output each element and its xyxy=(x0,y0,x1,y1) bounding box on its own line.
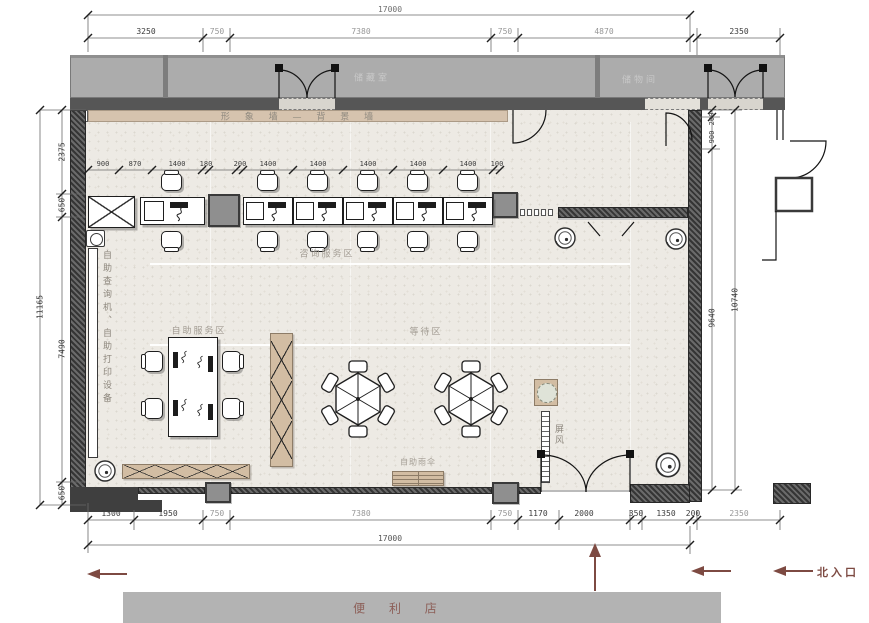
right-wall xyxy=(688,110,702,502)
dim-label: 2350 xyxy=(729,509,748,518)
rack-divider xyxy=(418,472,419,485)
dim-label: 200 xyxy=(234,160,247,168)
station-bar xyxy=(173,352,178,368)
dim-label: 1350 xyxy=(656,509,675,518)
column xyxy=(205,482,231,503)
dim-label: 1400 xyxy=(310,160,327,168)
chair xyxy=(222,351,241,372)
desk-xbox xyxy=(246,202,264,220)
consult-desk xyxy=(443,197,493,225)
self-service-table xyxy=(168,337,218,437)
dim-label: 200 xyxy=(708,113,716,126)
storage-right-door-opening xyxy=(708,98,763,110)
chair xyxy=(222,398,241,419)
bench-panel xyxy=(186,465,217,478)
dim-label: 7380 xyxy=(351,27,370,36)
storage-divider xyxy=(595,55,600,98)
dim-label: 350 xyxy=(629,509,643,518)
bench-panel xyxy=(155,465,186,478)
bottom-wall-seg xyxy=(230,487,492,494)
chair xyxy=(407,173,428,191)
chair xyxy=(307,173,328,191)
storage-room-label: 储藏室 xyxy=(354,71,390,84)
dim-left-total: 11165 xyxy=(36,295,45,319)
chair xyxy=(144,351,163,372)
dim-label: 4870 xyxy=(594,27,613,36)
chair xyxy=(257,231,278,249)
partition-wall xyxy=(558,207,688,218)
dim-label: 100 xyxy=(491,160,504,168)
side-cabinet xyxy=(88,196,135,228)
feature-wall-label: 形 象 墙 — 背 景 墙 xyxy=(221,110,379,123)
storage-divider xyxy=(163,55,168,98)
dim-label: 1400 xyxy=(260,160,277,168)
zone-divider-line xyxy=(150,263,630,265)
chair xyxy=(161,231,182,249)
dim-label: 2375 xyxy=(58,142,67,161)
station-bar xyxy=(208,404,213,420)
chair xyxy=(357,231,378,249)
north-entrance-label: 北入口 xyxy=(817,564,859,580)
storage-room-label: 储物间 xyxy=(622,73,658,86)
desk-xbox xyxy=(346,202,364,220)
umbrella-rack xyxy=(392,471,444,486)
dim-label: 180 xyxy=(200,160,213,168)
bench xyxy=(122,464,250,479)
station-bar xyxy=(173,400,178,416)
desk-xbox xyxy=(144,201,164,221)
bottom-wall-seg xyxy=(518,487,541,494)
desk-xbox xyxy=(446,202,464,220)
bottom-left-corner xyxy=(70,487,138,500)
bench-panel xyxy=(124,465,155,478)
consult-desk xyxy=(293,197,343,225)
bench-panel xyxy=(217,465,248,478)
desk-monitor xyxy=(268,202,286,208)
dim-label: 1400 xyxy=(410,160,427,168)
self-service-machines xyxy=(88,248,98,458)
desk-monitor xyxy=(170,202,188,208)
umbrella-label: 自助雨伞 xyxy=(400,457,436,468)
chair xyxy=(161,173,182,191)
floor-grid-line xyxy=(350,122,351,487)
chair xyxy=(144,398,163,419)
waiting-zone-label: 等待区 xyxy=(409,325,442,338)
column xyxy=(492,482,519,504)
top-door-opening xyxy=(279,98,335,110)
dim-label: 1170 xyxy=(528,509,547,518)
dim-label: 2000 xyxy=(574,509,593,518)
cabinet-panel xyxy=(271,421,292,459)
cabinet-panel xyxy=(271,381,292,419)
consult-desk xyxy=(243,197,293,225)
partition-dash xyxy=(548,209,553,216)
desk-monitor xyxy=(468,202,486,208)
dim-label: 1300 xyxy=(101,509,120,518)
dim-label: 750 xyxy=(498,509,512,518)
bin-icon xyxy=(86,230,105,247)
consult-desk xyxy=(343,197,393,225)
dim-label: 1400 xyxy=(360,160,377,168)
plant-icon xyxy=(537,383,557,403)
dim-label: 1400 xyxy=(169,160,186,168)
chair xyxy=(257,173,278,191)
storage-band xyxy=(70,55,785,98)
chair xyxy=(457,231,478,249)
partition-dash xyxy=(527,209,532,216)
screen-label: 屏风 xyxy=(552,424,565,446)
dim-label: 900 xyxy=(97,160,110,168)
floor-grid-line xyxy=(630,122,631,487)
dim-label: 2350 xyxy=(729,27,748,36)
dim-label: 870 xyxy=(129,160,142,168)
zone-divider-line xyxy=(150,344,630,346)
desk-monitor xyxy=(418,202,436,208)
dim-label: 200 xyxy=(686,509,700,518)
partition-dash xyxy=(534,209,539,216)
dim-right-total: 10740 xyxy=(731,288,740,312)
convenience-store-label: 便 利 店 xyxy=(353,600,447,617)
desk-monitor xyxy=(318,202,336,208)
equipment-label: 自助查询机、自助打印设备 xyxy=(100,250,113,406)
dim-label: 650 xyxy=(58,198,67,212)
dim-label: 1950 xyxy=(158,509,177,518)
floor-plan-canvas: 17000 3250 750 7380 750 4870 2350 900 87… xyxy=(0,0,869,623)
dim-label: 900 xyxy=(708,131,716,144)
entrance-arrows xyxy=(87,543,813,591)
desk-monitor xyxy=(368,202,386,208)
planter xyxy=(534,379,558,406)
dim-label: 7380 xyxy=(351,509,370,518)
folding-screen xyxy=(541,411,550,483)
dim-bottom-total: 17000 xyxy=(378,534,402,543)
dim-label: 750 xyxy=(498,27,512,36)
consult-desk xyxy=(393,197,443,225)
dim-label: 650 xyxy=(58,486,67,500)
dim-label: 750 xyxy=(210,27,224,36)
chair xyxy=(407,231,428,249)
partition-dash xyxy=(520,209,525,216)
chair xyxy=(357,173,378,191)
dim-label: 9640 xyxy=(708,308,717,327)
display-cabinet xyxy=(270,333,293,467)
consult-desk xyxy=(140,197,205,225)
consult-zone-label: 咨询服务区 xyxy=(299,247,354,260)
self-service-zone-label: 自助服务区 xyxy=(171,324,226,337)
dim-label: 1400 xyxy=(460,160,477,168)
cabinet-panel xyxy=(271,341,292,379)
desk-xbox xyxy=(296,202,314,220)
dim-label: 750 xyxy=(210,509,224,518)
desk-xbox xyxy=(396,202,414,220)
dim-top-total: 17000 xyxy=(378,5,402,14)
corridor-opening xyxy=(645,98,700,110)
outside-right-block xyxy=(773,483,811,504)
partition-shadow xyxy=(558,218,688,220)
dim-label: 7490 xyxy=(58,339,67,358)
station-bar xyxy=(208,356,213,372)
left-wall xyxy=(70,110,86,502)
entrance-threshold xyxy=(541,490,630,492)
floor-grid-line xyxy=(490,122,491,487)
bottom-wall-seg xyxy=(138,487,205,494)
column xyxy=(492,192,518,218)
dim-label: 3250 xyxy=(136,27,155,36)
bin-circle xyxy=(90,233,103,246)
chair xyxy=(457,173,478,191)
column xyxy=(208,194,240,227)
bottom-right-block xyxy=(630,484,690,503)
partition-dash xyxy=(541,209,546,216)
